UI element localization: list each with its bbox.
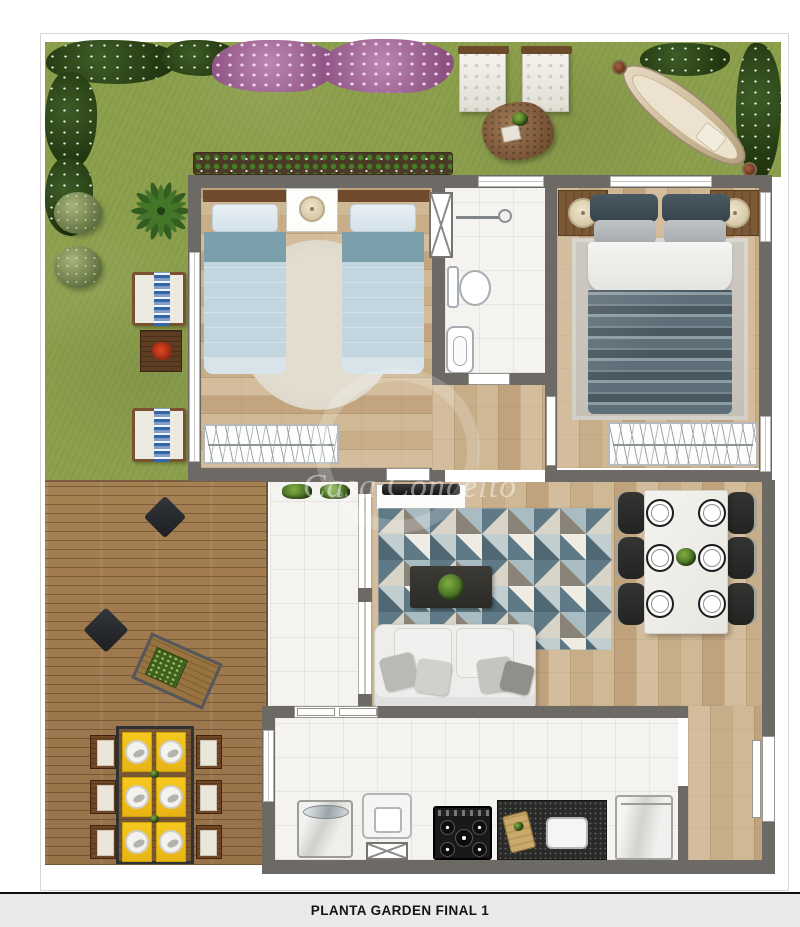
hall-floor <box>432 373 545 473</box>
dining-chair <box>726 537 754 579</box>
wall-patio-top <box>262 470 358 482</box>
master-blanket <box>588 290 732 414</box>
burner <box>440 820 455 835</box>
outdoor-chair <box>196 735 222 769</box>
knob-strip <box>438 810 489 816</box>
chair-cushion <box>200 740 217 766</box>
center-burner <box>455 829 473 847</box>
outdoor-plate <box>125 830 149 854</box>
coffee-table-plant <box>438 574 464 600</box>
chair-cushion <box>200 785 217 811</box>
mound-plant <box>512 112 528 126</box>
palm-plant <box>128 178 194 244</box>
place-setting <box>646 590 674 618</box>
place-setting <box>698 590 726 618</box>
food <box>132 838 146 849</box>
patio-floor <box>270 482 358 706</box>
hammock-anchor-top <box>612 60 627 75</box>
chair-throw-blanket <box>154 272 170 326</box>
red-flower-pot <box>152 342 172 360</box>
burner <box>472 842 487 857</box>
hammock-group <box>608 56 760 176</box>
master-right-window-1 <box>760 192 771 242</box>
chair-cushion <box>97 740 114 766</box>
cutting-board <box>502 810 536 853</box>
master-right-window-2 <box>760 416 771 472</box>
purple-flower-bed-1 <box>212 40 338 92</box>
tv <box>382 484 460 495</box>
hall-living-opening <box>445 470 545 482</box>
plan-title: PLANTA GARDEN FINAL 1 <box>311 903 489 918</box>
food <box>132 793 146 804</box>
wall-bottom <box>262 860 775 874</box>
master-pillow-dark <box>590 194 658 222</box>
patio-plant-1 <box>282 484 312 499</box>
twin-bed-right <box>342 262 424 358</box>
bathroom-window <box>478 176 544 187</box>
shower-head <box>498 209 512 223</box>
rock-planting-mound <box>482 102 554 160</box>
twin-bed-foot <box>204 358 286 374</box>
fridge-handle <box>621 803 671 805</box>
chair-cushion <box>200 830 217 856</box>
round-bush-1 <box>54 192 102 234</box>
kitchen-door-leaf <box>339 708 377 716</box>
kitchen-door-leaf <box>297 708 335 716</box>
mullion <box>358 694 372 706</box>
outdoor-chair <box>90 825 116 859</box>
planter-strip <box>193 152 453 175</box>
burner <box>472 820 487 835</box>
garden-armchair-1 <box>132 272 186 326</box>
refrigerator <box>615 795 673 860</box>
washer-lid <box>303 805 349 819</box>
garden-side-table <box>140 330 182 372</box>
stepping-stone <box>501 124 522 142</box>
stove <box>433 806 492 860</box>
outdoor-chair <box>90 780 116 814</box>
dining-chair <box>726 492 754 534</box>
mullion <box>358 588 372 602</box>
sink-basin <box>453 336 467 366</box>
patio-plant-2 <box>320 484 350 499</box>
hedge-left-edge-1 <box>45 72 97 168</box>
tub-cabinet <box>366 842 408 860</box>
outdoor-chair <box>90 735 116 769</box>
food <box>132 748 146 759</box>
twin-bed-accent <box>204 232 286 262</box>
kitchen-sink <box>546 817 588 849</box>
laundry-tub <box>362 793 412 839</box>
pouf-frame <box>521 46 572 54</box>
pouf-frame <box>458 46 509 54</box>
outdoor-plate <box>159 830 183 854</box>
toilet-bowl <box>459 270 491 306</box>
table-garnish <box>150 770 159 778</box>
dining-chair <box>618 583 646 625</box>
toilet-tank <box>447 266 459 308</box>
twin-bed-accent <box>342 232 424 262</box>
title-bar: PLANTA GARDEN FINAL 1 <box>0 894 800 927</box>
master-pillow-gray <box>594 220 656 244</box>
dining-centerpiece <box>676 548 696 566</box>
entry-door-leaf <box>752 740 761 818</box>
twin-bedroom-wardrobe <box>203 424 339 464</box>
twin-bed-left <box>204 262 286 358</box>
mullion <box>358 482 372 494</box>
garden-pouf-1 <box>459 48 506 112</box>
nightstand-lamp <box>299 196 325 222</box>
lounger-plant-tray <box>145 647 188 688</box>
shower-grab-bar <box>456 216 504 219</box>
entry-floor <box>688 706 762 862</box>
twin-bed-pillow <box>350 204 416 232</box>
food <box>166 748 180 759</box>
master-pillow-gray <box>664 220 726 244</box>
chair-cushion <box>97 830 114 856</box>
outdoor-plate <box>125 785 149 809</box>
master-top-window <box>610 176 712 187</box>
bathroom-sink <box>446 326 474 374</box>
dining-chair <box>726 583 754 625</box>
outdoor-plate <box>159 740 183 764</box>
master-wardrobe <box>608 422 758 466</box>
chair-throw-blanket <box>154 408 170 462</box>
place-setting <box>698 499 726 527</box>
table-garnish <box>150 815 159 823</box>
master-door-opening <box>546 396 556 466</box>
purple-flower-bed-2 <box>322 39 454 93</box>
dining-chair <box>618 537 646 579</box>
place-setting <box>646 544 674 572</box>
dining-chair <box>618 492 646 534</box>
twin-bedroom-window <box>189 252 200 462</box>
place-setting <box>698 544 726 572</box>
garden-armchair-2 <box>132 408 186 462</box>
hammock <box>610 50 758 180</box>
hammock-inner <box>624 65 746 170</box>
chair-cushion <box>97 785 114 811</box>
food <box>166 793 180 804</box>
outdoor-plate <box>159 785 183 809</box>
floor-plan-page: Casa Conceito PLANTA GARDEN FINAL 1 <box>0 0 800 927</box>
round-bush-2 <box>54 246 102 288</box>
twin-bed-pillow <box>212 204 278 232</box>
master-pillow-dark <box>662 194 730 222</box>
entry-door-opening <box>762 736 775 822</box>
duct-shaft <box>429 192 453 258</box>
burner <box>440 842 455 857</box>
wall-kitchen-entry-stub <box>678 786 688 860</box>
outdoor-plate <box>125 740 149 764</box>
master-duvet-fold <box>588 242 732 292</box>
outdoor-chair <box>196 825 222 859</box>
granite-counter <box>497 800 607 860</box>
food <box>166 838 180 849</box>
place-setting <box>646 499 674 527</box>
herbs <box>513 821 525 832</box>
washing-machine <box>297 800 353 858</box>
tub-basin <box>374 807 402 833</box>
kitchen-window <box>263 730 274 802</box>
twin-bed-foot <box>342 358 424 374</box>
sofa-pillow <box>414 658 452 696</box>
twin-bedroom-door-opening <box>386 468 430 481</box>
bathroom-door-opening <box>468 373 510 385</box>
outdoor-chair <box>196 780 222 814</box>
